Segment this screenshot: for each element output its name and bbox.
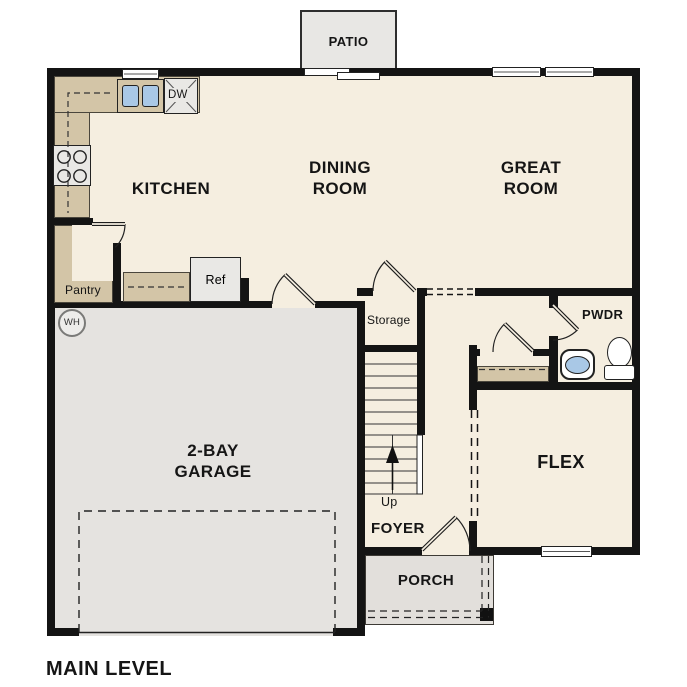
kitchen-label: KITCHEN bbox=[111, 178, 231, 199]
dashed-cabinet-lines bbox=[68, 93, 547, 370]
garage-door-track bbox=[79, 511, 335, 632]
floor-plan: PATIO Ref WH bbox=[0, 0, 687, 687]
dining-room-label: DINING ROOM bbox=[281, 157, 399, 199]
stairs-up-label: Up bbox=[381, 495, 397, 509]
great-room-label: GREAT ROOM bbox=[472, 157, 590, 199]
foyer-label: FOYER bbox=[371, 518, 425, 539]
pantry-label: Pantry bbox=[65, 283, 101, 297]
door-leaves bbox=[92, 224, 578, 550]
porch-label: PORCH bbox=[366, 570, 486, 591]
great-room-cased-opening bbox=[427, 289, 475, 295]
stove-burners-icon bbox=[58, 151, 86, 182]
stair-railing bbox=[417, 435, 423, 494]
door-swing-arcs bbox=[115, 224, 577, 551]
garage-label: 2-BAY GARAGE bbox=[153, 440, 273, 482]
plan-title: MAIN LEVEL bbox=[46, 659, 172, 680]
plan-linework bbox=[0, 0, 687, 687]
pwdr-label: PWDR bbox=[582, 304, 623, 325]
storage-label: Storage bbox=[367, 313, 410, 327]
door-leaf-highlights bbox=[92, 224, 578, 550]
dishwasher-label: DW bbox=[167, 88, 189, 102]
flex-cased-opening bbox=[472, 410, 478, 521]
flex-label: FLEX bbox=[511, 452, 611, 473]
stair-treads bbox=[365, 364, 423, 494]
